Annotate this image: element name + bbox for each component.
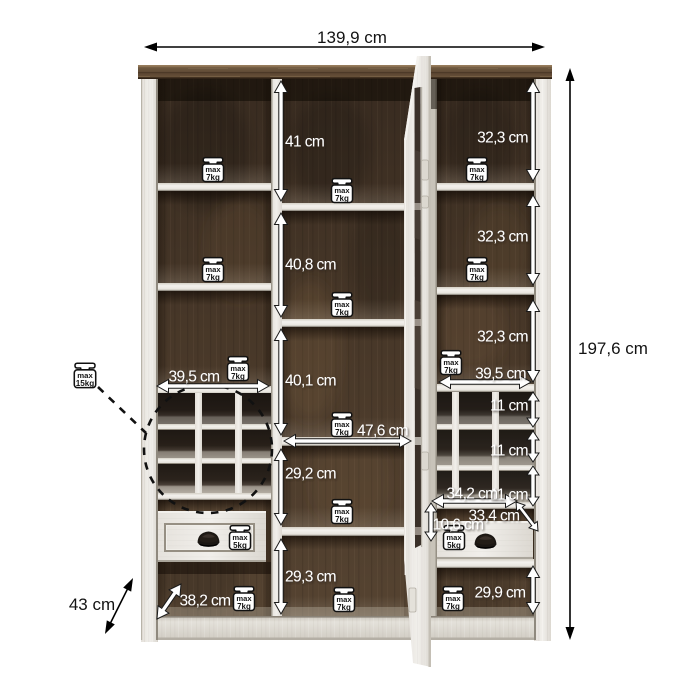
svg-text:29,2 cm: 29,2 cm (285, 465, 336, 482)
svg-text:43 cm: 43 cm (69, 595, 115, 614)
svg-text:40,8 cm: 40,8 cm (285, 256, 336, 273)
svg-text:5kg: 5kg (447, 541, 461, 550)
svg-text:32,3 cm: 32,3 cm (477, 129, 528, 146)
svg-text:7kg: 7kg (446, 602, 460, 611)
svg-text:7kg: 7kg (337, 603, 351, 612)
svg-text:7kg: 7kg (470, 273, 484, 282)
svg-text:29,9 cm: 29,9 cm (475, 584, 526, 601)
svg-text:32,3 cm: 32,3 cm (477, 328, 528, 345)
svg-text:7kg: 7kg (335, 515, 349, 524)
svg-text:197,6 cm: 197,6 cm (578, 339, 648, 358)
svg-text:7kg: 7kg (335, 308, 349, 317)
svg-text:7kg: 7kg (231, 372, 245, 381)
svg-text:7kg: 7kg (470, 173, 484, 182)
svg-text:7kg: 7kg (206, 273, 220, 282)
svg-text:139,9 cm: 139,9 cm (317, 28, 387, 47)
svg-text:7kg: 7kg (206, 173, 220, 182)
svg-text:29,3 cm: 29,3 cm (285, 568, 336, 585)
svg-text:32,3 cm: 32,3 cm (477, 228, 528, 245)
svg-text:38,2 cm: 38,2 cm (180, 592, 231, 609)
svg-text:10,6 cm: 10,6 cm (433, 516, 484, 533)
svg-text:40,1 cm: 40,1 cm (285, 372, 336, 389)
svg-text:7kg: 7kg (237, 602, 251, 611)
svg-text:39,5 cm: 39,5 cm (475, 365, 526, 382)
svg-text:7kg: 7kg (335, 428, 349, 437)
svg-text:7kg: 7kg (444, 366, 458, 375)
svg-text:39,5 cm: 39,5 cm (169, 368, 220, 385)
svg-text:41 cm: 41 cm (285, 133, 324, 150)
svg-text:11 cm: 11 cm (490, 397, 528, 414)
svg-text:11 cm: 11 cm (490, 442, 528, 459)
svg-text:5kg: 5kg (233, 541, 247, 550)
svg-text:34,2 cm: 34,2 cm (447, 485, 498, 502)
svg-text:47,6 cm: 47,6 cm (357, 422, 408, 439)
svg-text:15kg: 15kg (76, 379, 95, 388)
svg-text:7kg: 7kg (335, 194, 349, 203)
